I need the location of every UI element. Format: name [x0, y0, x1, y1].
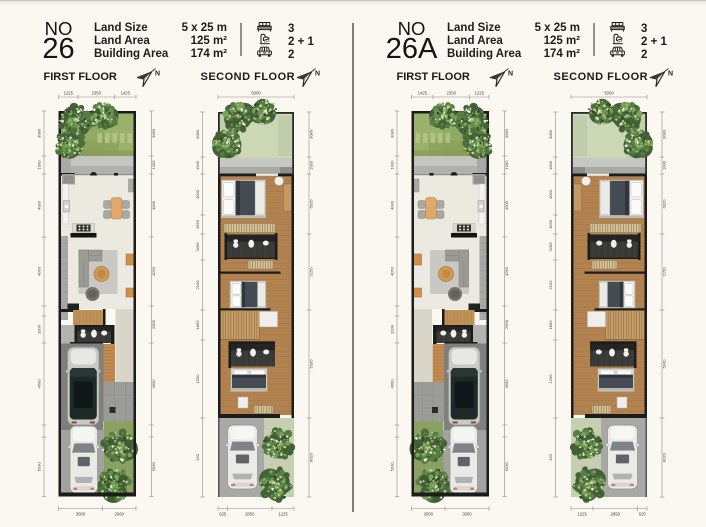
- svg-text:4600: 4600: [151, 379, 156, 389]
- svg-text:3080: 3080: [548, 129, 553, 139]
- svg-text:1200: 1200: [195, 374, 200, 384]
- svg-text:1650: 1650: [548, 219, 553, 229]
- svg-text:SECOND FLOOR: SECOND FLOOR: [554, 71, 649, 83]
- svg-text:26: 26: [42, 33, 74, 65]
- svg-text:3000: 3000: [76, 512, 86, 517]
- svg-text:2300: 2300: [151, 319, 156, 329]
- svg-text:1000: 1000: [662, 160, 667, 170]
- svg-text:1650: 1650: [195, 219, 200, 229]
- svg-text:SECOND FLOOR: SECOND FLOOR: [201, 71, 296, 83]
- svg-text:5030: 5030: [309, 359, 314, 369]
- svg-text:1225: 1225: [278, 512, 288, 517]
- svg-text:1000: 1000: [151, 160, 156, 170]
- svg-text:1850: 1850: [195, 320, 200, 330]
- svg-text:1000: 1000: [37, 160, 42, 170]
- svg-text:1000: 1000: [504, 160, 509, 170]
- svg-text:1425: 1425: [121, 91, 131, 96]
- svg-text:5 x 25 m: 5 x 25 m: [182, 22, 227, 34]
- svg-text:2300: 2300: [504, 319, 509, 329]
- svg-text:1225: 1225: [577, 512, 587, 517]
- svg-text:2350: 2350: [447, 91, 457, 96]
- svg-text:1850: 1850: [548, 320, 553, 330]
- svg-text:2850: 2850: [245, 512, 255, 517]
- svg-text:125 m²: 125 m²: [191, 35, 228, 47]
- svg-text:3: 3: [288, 23, 294, 35]
- svg-text:125 m²: 125 m²: [544, 35, 581, 47]
- svg-text:5000: 5000: [251, 91, 261, 96]
- svg-text:2: 2: [641, 49, 647, 61]
- svg-text:1225: 1225: [64, 91, 74, 96]
- svg-text:3200: 3200: [548, 242, 553, 252]
- svg-text:2060: 2060: [115, 512, 125, 517]
- svg-text:4050: 4050: [151, 266, 156, 276]
- svg-text:4000: 4000: [390, 200, 395, 210]
- svg-text:1000: 1000: [37, 324, 42, 334]
- svg-text:5030: 5030: [662, 359, 667, 369]
- svg-text:4050: 4050: [390, 266, 395, 276]
- svg-text:3080: 3080: [37, 128, 42, 138]
- svg-text:4050: 4050: [37, 266, 42, 276]
- svg-text:4000: 4000: [37, 200, 42, 210]
- svg-text:4050: 4050: [504, 266, 509, 276]
- svg-text:Land Area: Land Area: [94, 35, 150, 47]
- svg-text:1225: 1225: [475, 91, 485, 96]
- svg-text:8020: 8020: [662, 452, 667, 462]
- svg-text:5000: 5000: [604, 91, 614, 96]
- svg-text:1200: 1200: [548, 374, 553, 384]
- svg-text:2 + 1: 2 + 1: [641, 36, 668, 48]
- svg-text:3080: 3080: [195, 129, 200, 139]
- svg-text:FIRST FLOOR: FIRST FLOOR: [44, 71, 117, 83]
- svg-text:1000: 1000: [548, 160, 553, 170]
- svg-text:5 x 25 m: 5 x 25 m: [535, 22, 580, 34]
- svg-text:5030: 5030: [37, 462, 42, 472]
- svg-text:Land Size: Land Size: [447, 22, 501, 34]
- svg-text:26A: 26A: [386, 33, 438, 65]
- svg-text:1425: 1425: [418, 91, 428, 96]
- svg-text:N: N: [315, 71, 320, 78]
- svg-text:3080: 3080: [309, 129, 314, 139]
- svg-text:174 m²: 174 m²: [544, 48, 581, 60]
- svg-text:1000: 1000: [309, 160, 314, 170]
- svg-text:4000: 4000: [504, 200, 509, 210]
- svg-text:2150: 2150: [662, 267, 667, 277]
- svg-text:N: N: [668, 71, 673, 78]
- svg-text:2150: 2150: [195, 280, 200, 290]
- svg-text:3000: 3000: [462, 512, 472, 517]
- svg-text:5030: 5030: [390, 462, 395, 472]
- svg-text:4600: 4600: [37, 379, 42, 389]
- svg-text:1000: 1000: [195, 160, 200, 170]
- svg-text:625: 625: [219, 512, 227, 517]
- svg-text:150: 150: [548, 453, 553, 460]
- svg-text:Building Area: Building Area: [447, 48, 522, 60]
- svg-text:2 + 1: 2 + 1: [288, 36, 315, 48]
- svg-text:Land Area: Land Area: [447, 35, 503, 47]
- svg-text:Building Area: Building Area: [94, 48, 169, 60]
- svg-text:2350: 2350: [92, 91, 102, 96]
- svg-text:2000: 2000: [424, 512, 434, 517]
- svg-text:150: 150: [195, 453, 200, 460]
- svg-text:3080: 3080: [390, 128, 395, 138]
- svg-text:5030: 5030: [504, 462, 509, 472]
- svg-text:1000: 1000: [390, 160, 395, 170]
- svg-text:3080: 3080: [504, 128, 509, 138]
- svg-text:4600: 4600: [504, 379, 509, 389]
- svg-text:6020: 6020: [662, 199, 667, 209]
- svg-text:3: 3: [641, 23, 647, 35]
- svg-text:1000: 1000: [390, 324, 395, 334]
- svg-text:N: N: [508, 71, 513, 78]
- svg-text:2150: 2150: [548, 280, 553, 290]
- svg-text:Land Size: Land Size: [94, 22, 148, 34]
- svg-text:4000: 4000: [195, 189, 200, 199]
- svg-text:3080: 3080: [662, 129, 667, 139]
- svg-text:N: N: [155, 71, 160, 78]
- svg-text:4000: 4000: [151, 200, 156, 210]
- svg-text:3080: 3080: [151, 128, 156, 138]
- svg-text:2150: 2150: [309, 267, 314, 277]
- svg-text:625: 625: [639, 512, 647, 517]
- svg-text:8020: 8020: [309, 452, 314, 462]
- svg-text:FIRST FLOOR: FIRST FLOOR: [397, 71, 470, 83]
- svg-text:2: 2: [288, 49, 294, 61]
- svg-text:174 m²: 174 m²: [191, 48, 228, 60]
- svg-text:4600: 4600: [390, 379, 395, 389]
- svg-text:4000: 4000: [548, 189, 553, 199]
- svg-text:6020: 6020: [309, 199, 314, 209]
- svg-text:3200: 3200: [195, 242, 200, 252]
- svg-text:2850: 2850: [611, 512, 621, 517]
- svg-text:5030: 5030: [151, 462, 156, 472]
